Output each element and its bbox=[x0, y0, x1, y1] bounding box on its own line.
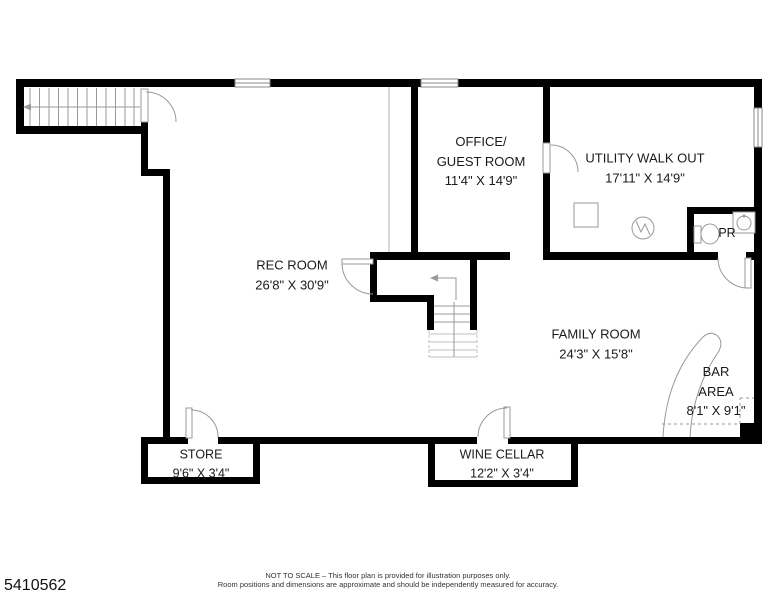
disclaimer: NOT TO SCALE – This floor plan is provid… bbox=[0, 571, 776, 589]
sink-icon bbox=[733, 212, 755, 233]
room-dims: 26'8" X 30'9" bbox=[255, 275, 328, 295]
floor-plan-drawing bbox=[0, 0, 776, 600]
window-icon-top-left bbox=[235, 79, 270, 87]
room-label-powder-room: PR bbox=[718, 226, 735, 240]
room-dims: 8'1" X 9'1" bbox=[686, 401, 746, 421]
upper-staircase-icon bbox=[23, 88, 140, 126]
stair-door-icon bbox=[141, 89, 176, 122]
office-door-icon bbox=[543, 143, 578, 173]
room-label-family-room: FAMILY ROOM 24'3" X 15'8" bbox=[551, 325, 640, 364]
room-label-bar-area: BAR AREA 8'1" X 9'1" bbox=[686, 362, 746, 421]
disclaimer-line-2: Room positions and dimensions are approx… bbox=[0, 580, 776, 589]
utility-box-icon bbox=[574, 203, 598, 227]
store-door-icon bbox=[186, 408, 218, 438]
room-label-rec-room: REC ROOM 26'8" X 30'9" bbox=[255, 256, 328, 295]
room-name: OFFICE/ GUEST ROOM bbox=[437, 132, 526, 171]
room-name: WINE CELLAR bbox=[460, 445, 545, 464]
room-name: REC ROOM bbox=[255, 256, 328, 276]
room-name: FAMILY ROOM bbox=[551, 325, 640, 345]
wine-cellar-door-icon bbox=[478, 407, 510, 438]
room-label-office: OFFICE/ GUEST ROOM 11'4" X 14'9" bbox=[437, 132, 526, 191]
toilet-icon bbox=[694, 224, 719, 244]
room-dims: 17'11" X 14'9" bbox=[585, 168, 704, 188]
powder-room-door-icon bbox=[718, 258, 751, 288]
window-icon-right-utility bbox=[754, 108, 762, 147]
center-staircase-icon bbox=[429, 275, 477, 358]
disclaimer-line-1: NOT TO SCALE – This floor plan is provid… bbox=[0, 571, 776, 580]
room-dims: 9'6" X 3'4" bbox=[173, 464, 230, 483]
room-label-wine-cellar: WINE CELLAR 12'2" X 3'4" bbox=[460, 445, 545, 483]
interior-walls bbox=[370, 87, 754, 330]
room-name: BAR AREA bbox=[686, 362, 746, 401]
room-label-store: STORE 9'6" X 3'4" bbox=[173, 445, 230, 483]
room-dims: 12'2" X 3'4" bbox=[460, 464, 545, 483]
room-label-utility: UTILITY WALK OUT 17'11" X 14'9" bbox=[585, 149, 704, 188]
room-dims: 24'3" X 15'8" bbox=[551, 344, 640, 364]
water-heater-icon bbox=[632, 217, 654, 239]
room-name: UTILITY WALK OUT bbox=[585, 149, 704, 169]
floor-plan-page: OFFICE/ GUEST ROOM 11'4" X 14'9" UTILITY… bbox=[0, 0, 776, 600]
room-dims: 11'4" X 14'9" bbox=[437, 171, 526, 191]
room-name: STORE bbox=[173, 445, 230, 464]
rec-room-door-icon bbox=[342, 259, 373, 294]
window-icon-top-office bbox=[421, 79, 458, 87]
